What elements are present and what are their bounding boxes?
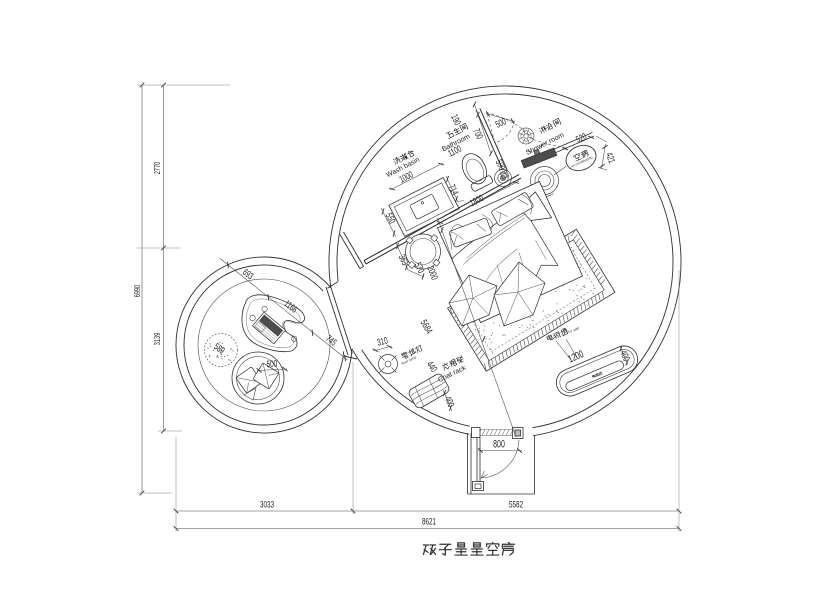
svg-text:5582: 5582	[509, 499, 523, 510]
svg-text:3139: 3139	[152, 333, 163, 345]
svg-text:2770: 2770	[152, 162, 163, 174]
svg-text:500: 500	[266, 358, 278, 369]
svg-text:6990: 6990	[132, 285, 143, 297]
svg-text:800: 800	[493, 438, 505, 450]
svg-text:3033: 3033	[260, 499, 274, 510]
svg-text:8621: 8621	[422, 516, 436, 527]
